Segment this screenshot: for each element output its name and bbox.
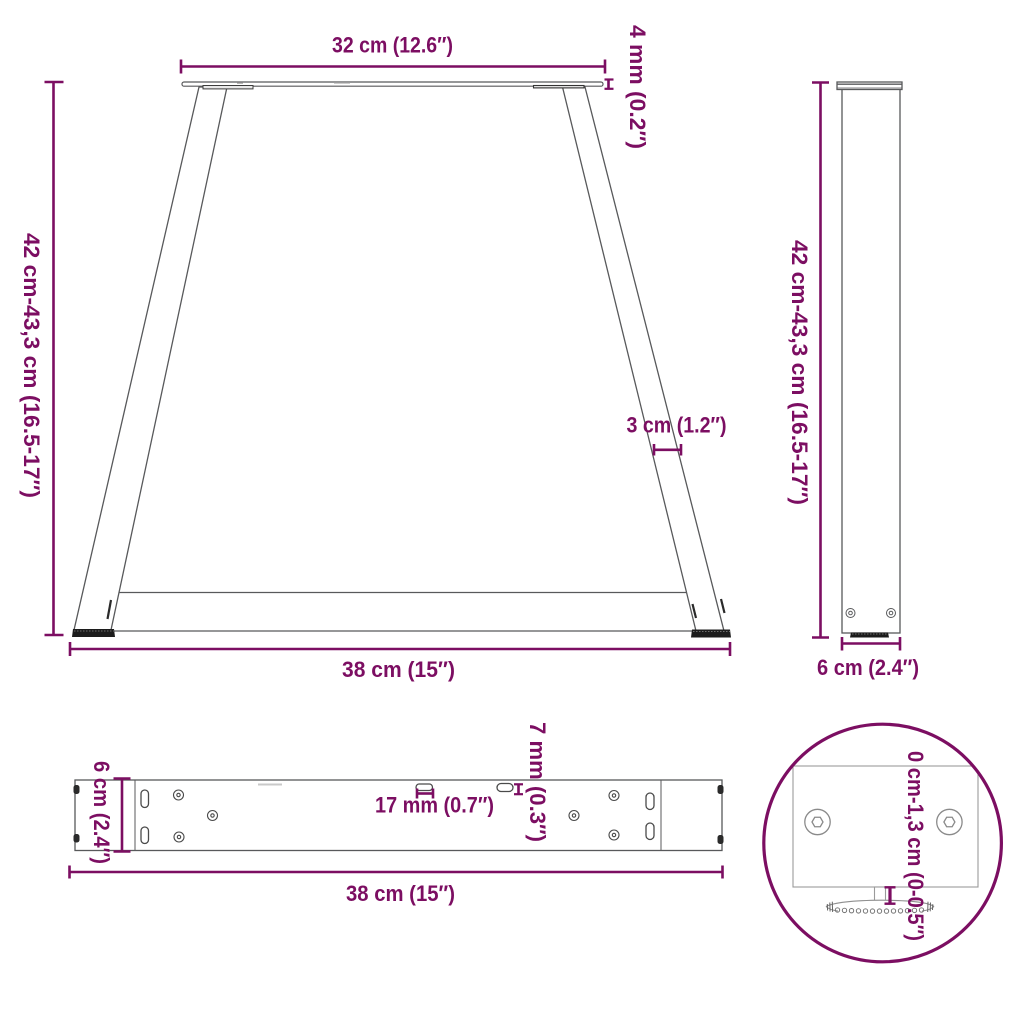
svg-text:4 mm (0.2″): 4 mm (0.2″): [625, 25, 650, 149]
svg-text:42 cm-43,3 cm (16.5-17″): 42 cm-43,3 cm (16.5-17″): [787, 240, 812, 505]
svg-text:42 cm-43,3 cm (16.5-17″): 42 cm-43,3 cm (16.5-17″): [19, 233, 44, 498]
svg-text:0 cm-1,3 cm (0-0.5″): 0 cm-1,3 cm (0-0.5″): [903, 751, 928, 941]
svg-text:6 cm (2.4″): 6 cm (2.4″): [89, 761, 114, 864]
svg-text:6 cm (2.4″): 6 cm (2.4″): [817, 655, 919, 680]
svg-text:17 mm (0.7″): 17 mm (0.7″): [375, 793, 494, 818]
svg-text:38 cm (15″): 38 cm (15″): [346, 881, 455, 906]
svg-text:32 cm (12.6″): 32 cm (12.6″): [332, 33, 453, 58]
svg-text:7 mm (0.3″): 7 mm (0.3″): [525, 722, 550, 842]
svg-text:38 cm (15″): 38 cm (15″): [342, 657, 455, 682]
svg-text:3 cm (1.2″): 3 cm (1.2″): [627, 413, 727, 438]
